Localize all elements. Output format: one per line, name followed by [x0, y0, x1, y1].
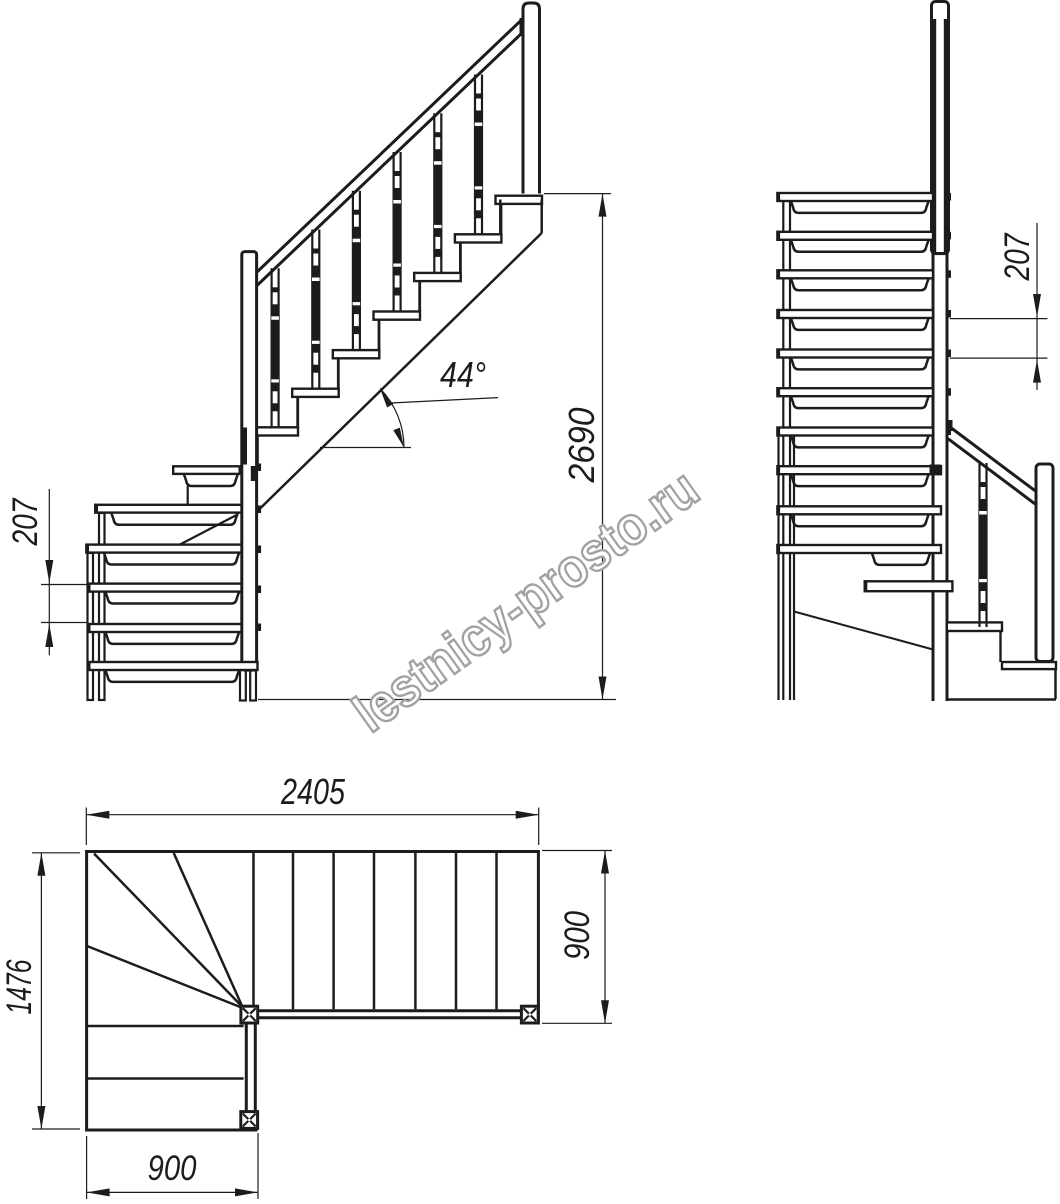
svg-text:900: 900 — [558, 911, 597, 960]
svg-text:2690: 2690 — [561, 408, 602, 484]
svg-text:900: 900 — [148, 1149, 197, 1188]
svg-text:207: 207 — [998, 232, 1037, 281]
svg-text:2405: 2405 — [280, 771, 346, 812]
svg-text:44°: 44° — [440, 354, 486, 395]
svg-text:207: 207 — [6, 497, 45, 546]
svg-text:1476: 1476 — [0, 959, 39, 1014]
